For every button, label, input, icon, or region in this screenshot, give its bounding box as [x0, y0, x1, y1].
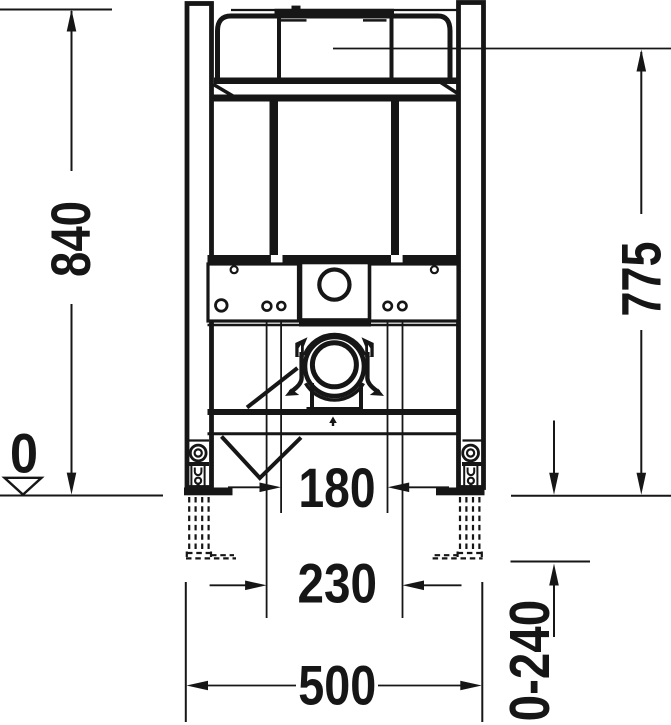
svg-text:0-240: 0-240	[498, 600, 562, 722]
svg-text:840: 840	[40, 201, 102, 277]
svg-text:230: 230	[297, 552, 377, 614]
svg-text:0: 0	[10, 422, 38, 484]
svg-text:180: 180	[299, 457, 376, 519]
svg-text:775: 775	[611, 242, 671, 317]
svg-text:500: 500	[298, 655, 376, 717]
